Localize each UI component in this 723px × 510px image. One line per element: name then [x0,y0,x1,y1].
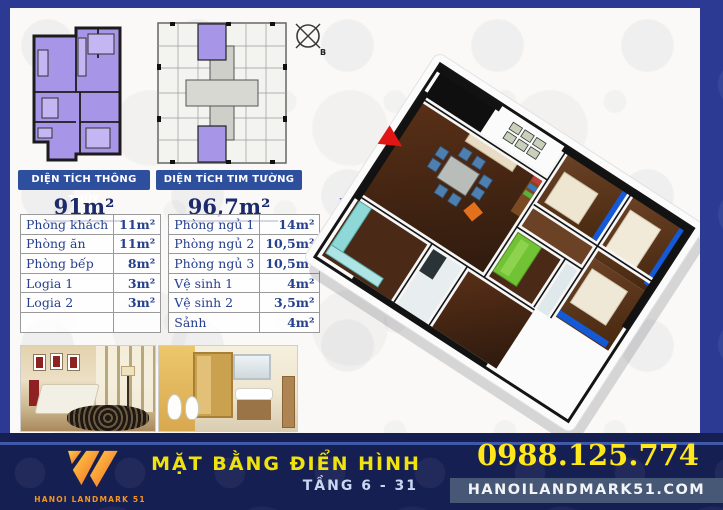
footer-title: MẶT BẰNG ĐIỂN HÌNH [140,453,432,475]
table-row: Phòng bếp 8m² Phòng ngủ 3 10,5m² [21,254,320,274]
room-name-cell: Phòng khách [21,215,114,235]
flyer-page: B DIỆN TÍCH THÔNG THỦY DIỆN TÍCH TIM TƯỜ… [0,0,723,510]
table-gap [161,293,169,313]
room-name-cell: Phòng ngủ 2 [169,234,260,254]
room-area-cell [114,312,161,332]
building-floorplate-plan [152,18,292,168]
tall-cabinet [282,376,295,428]
room-name-cell: Phòng ngủ 1 [169,215,260,235]
room-area-cell: 8m² [114,254,161,274]
area-header-gross: DIỆN TÍCH TIM TƯỜNG [156,170,302,190]
room-name-cell [21,312,114,332]
room-name-cell: Phòng ăn [21,234,114,254]
vanity-cabinet [237,400,271,420]
room-area-cell: 11m² [114,215,161,235]
table-gap [161,312,169,332]
footer-subtitle: TẦNG 6 - 31 [140,478,432,494]
table-gap [161,254,169,274]
room-name-cell: Logia 2 [21,293,114,313]
room-areas-table: Phòng khách 11m² Phòng ngủ 1 14m² Phòng … [20,214,320,333]
brand-name: HANOI LANDMARK 51 [30,495,150,504]
bathroom-photo [158,345,298,432]
room-area-cell: 11m² [114,234,161,254]
shower-door [197,356,211,414]
bidet [185,396,199,420]
content-area: B DIỆN TÍCH THÔNG THỦY DIỆN TÍCH TIM TƯỜ… [10,8,700,433]
room-name-cell: Vệ sinh 2 [169,293,260,313]
logo-v-icon [59,447,121,489]
unit-floor-plan-3d [300,38,700,433]
table-row: Phòng khách 11m² Phòng ngủ 1 14m² [21,215,320,235]
bedroom-photo [20,345,156,432]
table-row: Sảnh 4m² [21,312,320,332]
room-name-cell: Phòng ngủ 3 [169,254,260,274]
area-header-clear: DIỆN TÍCH THÔNG THỦY [18,170,150,190]
room-name-cell: Logia 1 [21,273,114,293]
table-gap [161,273,169,293]
table-gap [161,215,169,235]
website-strip: HANOILANDMARK51.COM [450,478,723,503]
room-area-cell: 3m² [114,293,161,313]
toilet [167,394,182,420]
lamp-shade [121,366,135,376]
unit-floor-plan-2d [18,22,130,164]
glass-doors [96,346,155,412]
mirror [233,354,271,380]
rug [67,405,149,431]
room-name-cell: Vệ sinh 1 [169,273,260,293]
table-row: Phòng ăn 11m² Phòng ngủ 2 10,5m² [21,234,320,254]
room-name-cell: Sảnh [169,312,260,332]
floor-lamp [127,374,129,408]
table-row: Logia 2 3m² Vệ sinh 2 3,5m² [21,293,320,313]
vanity-sink [235,388,273,400]
website-url: HANOILANDMARK51.COM [450,478,723,503]
table-gap [161,234,169,254]
table-row: Logia 1 3m² Vệ sinh 1 4m² [21,273,320,293]
brand-logo: HANOI LANDMARK 51 [30,447,150,504]
footer: HANOI LANDMARK 51 MẶT BẰNG ĐIỂN HÌNH TẦN… [0,433,723,510]
room-name-cell: Phòng bếp [21,254,114,274]
phone-number: 0988.125.774 [460,438,716,472]
room-area-cell: 3m² [114,273,161,293]
